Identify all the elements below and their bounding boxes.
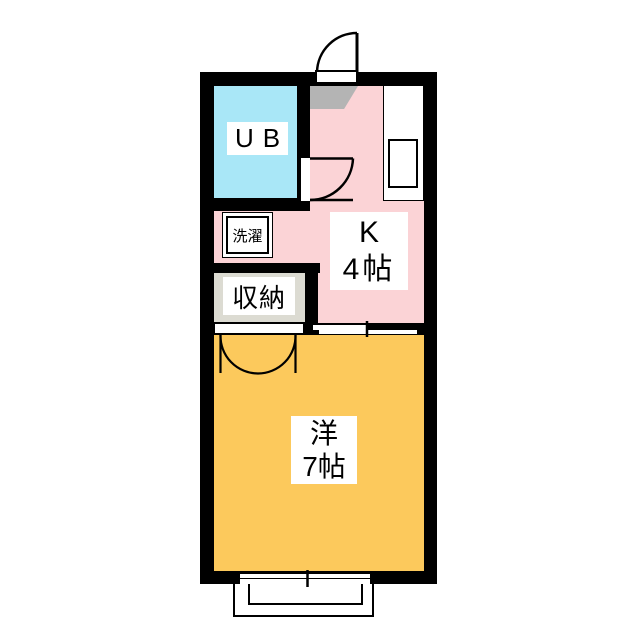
wall-right [424, 72, 437, 584]
western-room-label: 洋 7帖 [291, 416, 357, 484]
unit-bath-label-text: UB [235, 123, 289, 154]
closet-label: 収納 [223, 277, 295, 315]
unit-bath-label: UB [227, 122, 288, 155]
wall-closet-top [200, 263, 320, 273]
floorplan-canvas: UB 洗濯 収納 K 4帖 洋 7帖 [0, 0, 640, 640]
closet-door-opening [213, 322, 305, 335]
balcony-inner-outline [248, 584, 363, 605]
western-room-label-text: 洋 [310, 417, 338, 450]
western-room-size-text: 7帖 [302, 450, 346, 483]
bath-door-opening [301, 158, 310, 201]
laundry-label: 洗濯 [226, 216, 269, 254]
kitchen-label: K 4帖 [330, 212, 408, 290]
sliding-door-icon [319, 330, 417, 335]
closet-label-text: 収納 [232, 278, 286, 315]
sliding-window-icon [240, 579, 370, 584]
wall-bath-bottom [200, 198, 310, 211]
sliding-window-icon [240, 574, 370, 579]
kitchen-sink-icon [388, 139, 418, 188]
entrance-door-opening [315, 70, 358, 84]
wall-left [200, 72, 214, 584]
laundry-box: 洗濯 [222, 212, 273, 258]
kitchen-label-text: K [359, 214, 379, 251]
entrance-door-arc-icon [317, 33, 357, 72]
laundry-label-text: 洗濯 [232, 225, 262, 246]
kitchen-size-text: 4帖 [343, 251, 396, 288]
